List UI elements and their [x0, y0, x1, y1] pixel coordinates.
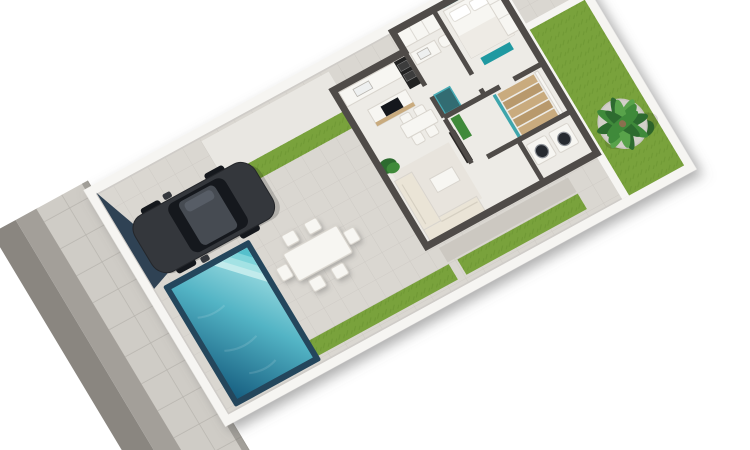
- floor-plan-render: [0, 0, 750, 450]
- plan-canvas: [0, 0, 750, 450]
